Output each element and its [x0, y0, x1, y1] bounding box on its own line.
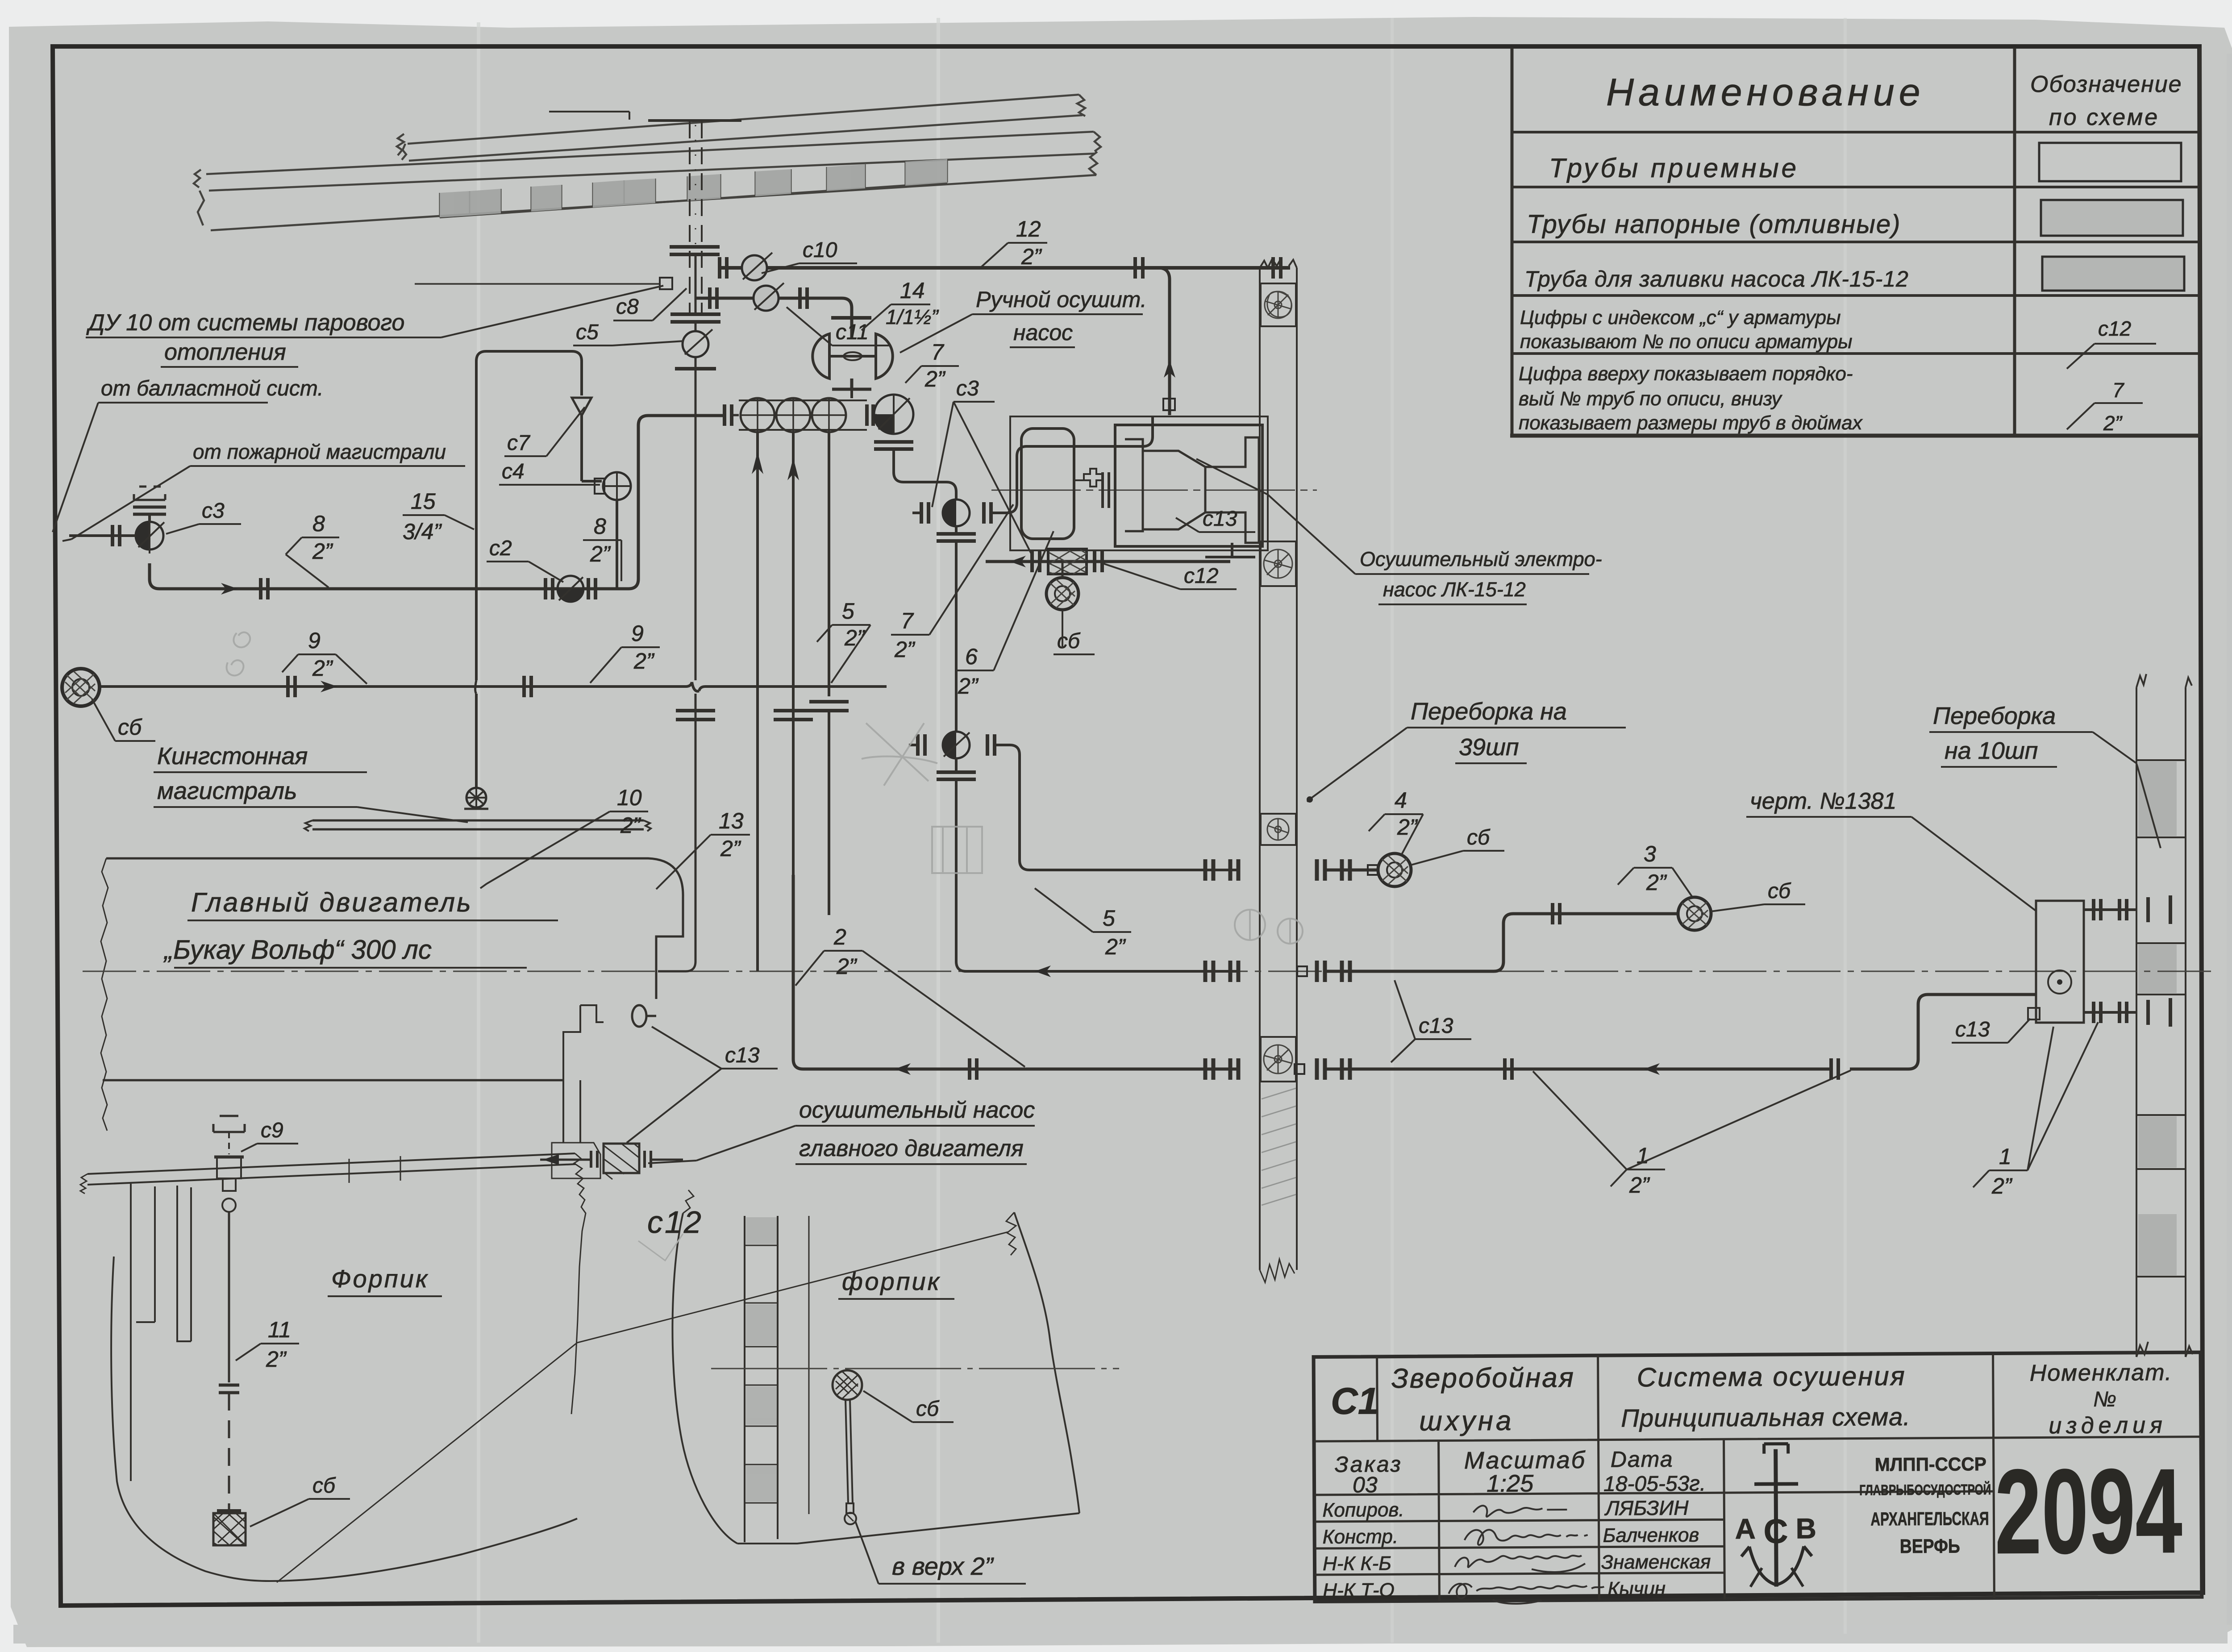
svg-text:показывает размеры труб в: показывает размеры труб в дюймах	[1519, 412, 1863, 434]
svg-text:Зверобойная: Зверобойная	[1391, 1362, 1575, 1394]
svg-text:А: А	[1735, 1513, 1756, 1545]
svg-text:с12: с12	[2098, 317, 2131, 340]
svg-text:Система осушения: Система осушения	[1637, 1361, 1906, 1392]
svg-text:„Букау Вольф“ 300 лс: „Букау Вольф“ 300 лс	[163, 935, 432, 965]
svg-text:1:25: 1:25	[1487, 1470, 1534, 1497]
svg-text:Труба для заливки насоса Л: Труба для заливки насоса ЛК-15-12	[1524, 266, 1909, 291]
svg-text:7: 7	[901, 608, 914, 633]
svg-text:39шп: 39шп	[1459, 734, 1519, 761]
svg-text:изделия: изделия	[2049, 1412, 2167, 1439]
svg-text:Кингстонная: Кингстонная	[157, 743, 308, 770]
svg-text:с9: с9	[261, 1119, 283, 1142]
svg-text:Dата: Dата	[1611, 1447, 1674, 1472]
svg-text:с3: с3	[202, 499, 225, 523]
svg-text:Кычин: Кычин	[1607, 1578, 1666, 1600]
svg-text:1/1½”: 1/1½”	[886, 305, 939, 329]
svg-text:15: 15	[411, 489, 436, 514]
svg-text:2094: 2094	[1995, 1444, 2183, 1579]
svg-text:Н-К К-Б: Н-К К-Б	[1323, 1552, 1391, 1575]
svg-text:2”: 2”	[924, 366, 946, 391]
svg-text:на 10шп: на 10шп	[1945, 737, 2038, 764]
svg-text:2”: 2”	[1021, 244, 1042, 269]
svg-text:сб: сб	[1057, 629, 1081, 653]
svg-text:Н-К Т-О: Н-К Т-О	[1323, 1579, 1395, 1602]
svg-text:ДУ 10 от системы парового: ДУ 10 от системы парового	[86, 310, 404, 336]
svg-text:с13: с13	[1955, 1018, 1990, 1041]
svg-text:с12: с12	[647, 1205, 703, 1240]
svg-text:18-05-53г.: 18-05-53г.	[1603, 1472, 1706, 1496]
svg-text:Цифра вверху показывает пор: Цифра вверху показывает порядко-	[1519, 363, 1853, 385]
svg-text:2: 2	[833, 924, 846, 949]
svg-text:10: 10	[617, 785, 642, 810]
svg-text:2”: 2”	[1629, 1173, 1650, 1198]
svg-text:Осушительный электро-: Осушительный электро-	[1360, 548, 1602, 570]
svg-text:главного двигателя: главного двигателя	[799, 1136, 1024, 1161]
svg-text:с13: с13	[1419, 1014, 1453, 1038]
svg-text:9: 9	[631, 621, 644, 646]
svg-text:03: 03	[1353, 1472, 1378, 1497]
svg-text:8: 8	[312, 511, 325, 536]
svg-text:9: 9	[308, 628, 321, 653]
svg-text:В: В	[1795, 1512, 1816, 1544]
svg-text:Знаменская: Знаменская	[1601, 1551, 1711, 1573]
svg-text:форпик: форпик	[842, 1267, 941, 1295]
svg-text:Балченков: Балченков	[1603, 1524, 1699, 1546]
svg-text:С: С	[1763, 1512, 1788, 1550]
svg-text:Переборка на: Переборка на	[1411, 698, 1567, 725]
svg-text:Копиров.: Копиров.	[1322, 1499, 1404, 1521]
svg-text:насос ЛК-15-12: насос ЛК-15-12	[1383, 578, 1526, 601]
svg-text:2”: 2”	[894, 637, 916, 662]
svg-text:Трубы напорные (отливные): Трубы напорные (отливные)	[1527, 210, 1901, 239]
svg-text:1: 1	[1999, 1144, 2011, 1169]
svg-text:сб: сб	[916, 1397, 940, 1421]
svg-text:6: 6	[965, 644, 978, 669]
svg-text:Обозначение: Обозначение	[2030, 71, 2182, 97]
svg-text:магистраль: магистраль	[157, 778, 297, 804]
svg-text:сб: сб	[1467, 826, 1491, 849]
svg-text:2”: 2”	[1397, 815, 1418, 840]
svg-text:Констр.: Констр.	[1323, 1526, 1399, 1548]
svg-text:7: 7	[2112, 379, 2124, 402]
svg-text:с2: с2	[489, 537, 512, 560]
svg-text:2”: 2”	[620, 813, 641, 838]
svg-text:2”: 2”	[720, 836, 741, 861]
svg-text:насос: насос	[1013, 320, 1073, 345]
svg-text:2”: 2”	[1991, 1173, 2013, 1198]
svg-text:3: 3	[1644, 841, 1656, 866]
svg-text:осушительный насос: осушительный насос	[799, 1097, 1035, 1123]
svg-text:2”: 2”	[312, 539, 333, 564]
svg-text:2”: 2”	[590, 541, 611, 566]
svg-text:с10: с10	[803, 238, 837, 262]
svg-text:13: 13	[719, 808, 744, 833]
svg-text:ЛЯБЗИН: ЛЯБЗИН	[1604, 1496, 1689, 1520]
svg-text:2”: 2”	[844, 625, 866, 650]
svg-text:7: 7	[931, 340, 945, 365]
svg-text:Трубы приемные: Трубы приемные	[1549, 153, 1799, 183]
svg-text:с4: с4	[502, 460, 525, 483]
svg-text:по схеме: по схеме	[2049, 104, 2159, 130]
svg-text:12: 12	[1016, 216, 1041, 241]
svg-text:2”: 2”	[1646, 870, 1667, 895]
svg-text:сб: сб	[1768, 879, 1791, 903]
svg-text:с13: с13	[1203, 507, 1237, 531]
svg-text:вый № труб по описи, вниз: вый № труб по описи, внизу	[1519, 388, 1783, 410]
svg-text:с12: с12	[1184, 564, 1218, 588]
svg-text:2”: 2”	[2103, 412, 2123, 435]
svg-text:С1: С1	[1331, 1380, 1379, 1422]
svg-text:2”: 2”	[1105, 934, 1126, 959]
svg-text:3/4”: 3/4”	[403, 519, 442, 544]
svg-text:Принципиальная схема.: Принципиальная схема.	[1621, 1402, 1911, 1432]
svg-text:2”: 2”	[958, 674, 979, 699]
svg-text:4: 4	[1395, 788, 1407, 813]
svg-text:5: 5	[842, 599, 854, 624]
svg-text:в верх 2”: в верх 2”	[892, 1552, 994, 1580]
svg-text:ВЕРФЬ: ВЕРФЬ	[1900, 1535, 1960, 1557]
svg-text:14: 14	[900, 278, 925, 303]
svg-text:8: 8	[594, 514, 606, 539]
svg-text:от балластной сист.: от балластной сист.	[101, 377, 324, 400]
svg-text:АРХАНГЕЛЬСКАЯ: АРХАНГЕЛЬСКАЯ	[1870, 1508, 1989, 1529]
svg-text:шхуна: шхуна	[1419, 1406, 1514, 1437]
svg-text:с3: с3	[956, 377, 979, 400]
svg-text:2”: 2”	[312, 656, 333, 681]
svg-text:Номенклат.: Номенклат.	[2030, 1360, 2173, 1386]
svg-text:Переборка: Переборка	[1933, 703, 2056, 729]
svg-text:Главный двигатель: Главный двигатель	[191, 887, 473, 917]
svg-text:сб: сб	[312, 1474, 336, 1498]
svg-text:2”: 2”	[836, 954, 858, 979]
svg-text:с11: с11	[836, 320, 869, 344]
svg-text:Ручной осушит.: Ручной осушит.	[976, 287, 1147, 312]
svg-text:2”: 2”	[266, 1347, 287, 1372]
svg-text:Форпик: Форпик	[331, 1265, 429, 1293]
svg-text:с7: с7	[507, 431, 531, 455]
svg-text:2”: 2”	[633, 649, 655, 674]
svg-text:ГЛАВРЫБОСУДОСТРОЙ: ГЛАВРЫБОСУДОСТРОЙ	[1859, 1481, 1991, 1498]
svg-text:сб: сб	[118, 715, 142, 740]
svg-text:11: 11	[268, 1317, 291, 1342]
svg-text:МЛПП-СССР: МЛПП-СССР	[1875, 1453, 1986, 1475]
svg-text:5: 5	[1103, 906, 1115, 931]
svg-text:с13: с13	[725, 1044, 760, 1067]
svg-text:Наименование: Наименование	[1606, 71, 1925, 114]
svg-text:от пожарной магистрали: от пожарной магистрали	[193, 440, 446, 463]
svg-text:Цифры с индексом „с“ у ар: Цифры с индексом „с“ у арматуры	[1520, 307, 1841, 329]
svg-text:черт. №1381: черт. №1381	[1750, 788, 1896, 814]
svg-text:с5: с5	[576, 320, 599, 344]
svg-text:№: №	[2093, 1388, 2116, 1411]
svg-text:показывают № по описи арма: показывают № по описи арматуры	[1520, 331, 1852, 353]
svg-text:отопления: отопления	[164, 339, 286, 365]
svg-text:с8: с8	[616, 295, 639, 319]
